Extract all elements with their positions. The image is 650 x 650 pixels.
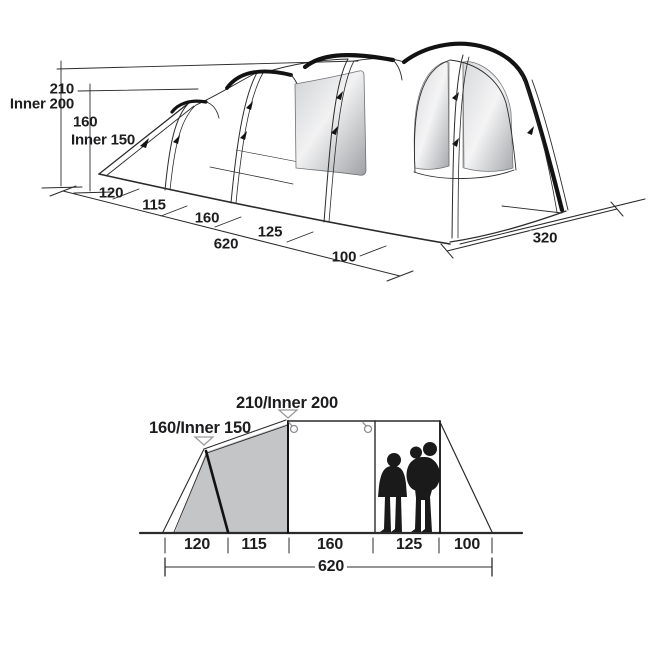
inner-200-label: Inner 200: [10, 97, 74, 112]
side-section-160-label: 160: [317, 537, 343, 553]
side-section-125-label: 125: [396, 537, 422, 553]
side-main-peak-label: 210/Inner 200: [236, 395, 338, 412]
inner-150-label: Inner 150: [71, 133, 135, 148]
side-section-100-label: 100: [454, 537, 480, 553]
people-silhouette: [378, 442, 440, 532]
width-320-label: 320: [530, 231, 560, 246]
section-120-label: 120: [99, 186, 123, 201]
height-210-label: 210: [50, 82, 74, 97]
side-window: [295, 71, 366, 176]
shaded-sloped-panel: [175, 424, 287, 532]
front-door-windows: [414, 62, 513, 172]
side-section-120-label: 120: [184, 537, 210, 553]
side-section-115-label: 115: [241, 537, 266, 553]
section-100-label: 100: [332, 250, 356, 265]
section-160-label: 160: [195, 211, 219, 226]
section-125-label: 125: [258, 225, 282, 240]
total-620-label: 620: [211, 237, 241, 252]
arch-pole-1: [165, 101, 219, 190]
tent-dimensions-figure: 210 Inner 200 160 Inner 150 120 115 160 …: [0, 0, 650, 650]
section-115-label: 115: [142, 198, 166, 213]
side-total-620-label: 620: [315, 559, 347, 575]
side-rear-peak-label: 160/Inner 150: [149, 420, 251, 437]
wall-seam: [210, 167, 293, 184]
height-160-label: 160: [73, 115, 97, 130]
hanging-ring-icons: [289, 423, 372, 433]
